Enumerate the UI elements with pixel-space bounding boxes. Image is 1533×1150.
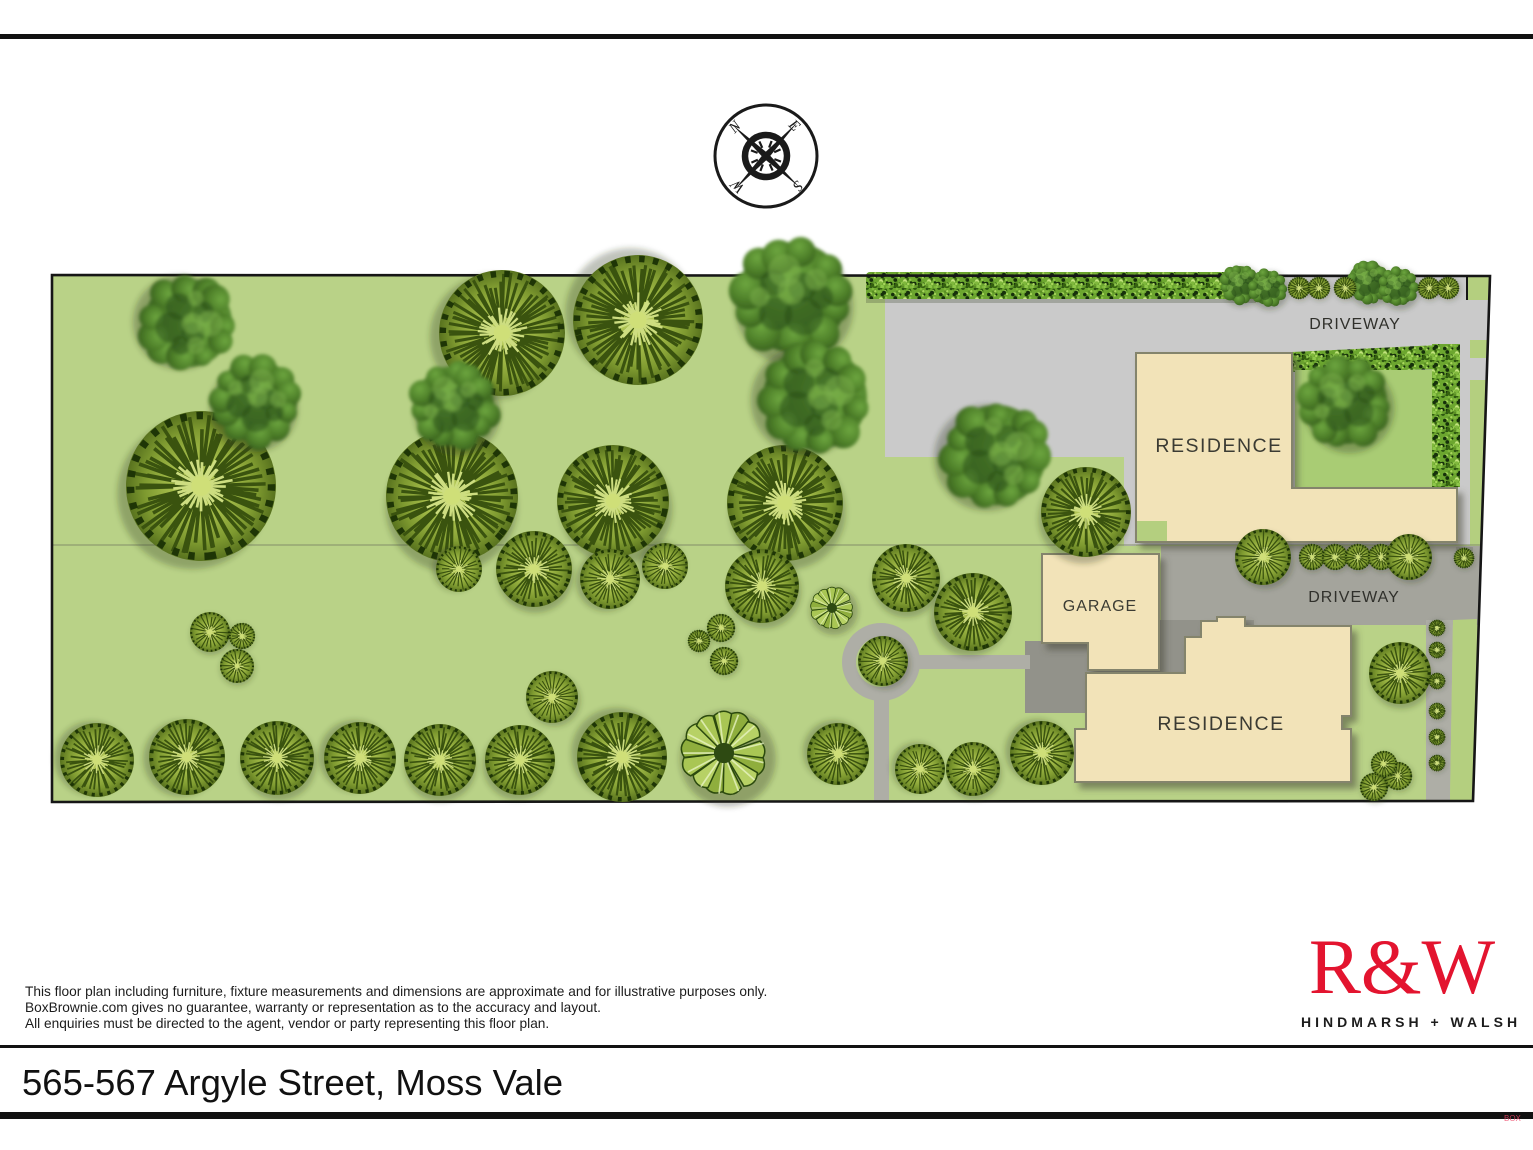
svg-text:GARAGE: GARAGE [1063,598,1137,615]
svg-text:DRIVEWAY: DRIVEWAY [1308,589,1400,606]
svg-text:RESIDENCE: RESIDENCE [1157,713,1284,735]
svg-text:DRIVEWAY: DRIVEWAY [1309,316,1401,333]
svg-text:RESIDENCE: RESIDENCE [1155,435,1282,457]
